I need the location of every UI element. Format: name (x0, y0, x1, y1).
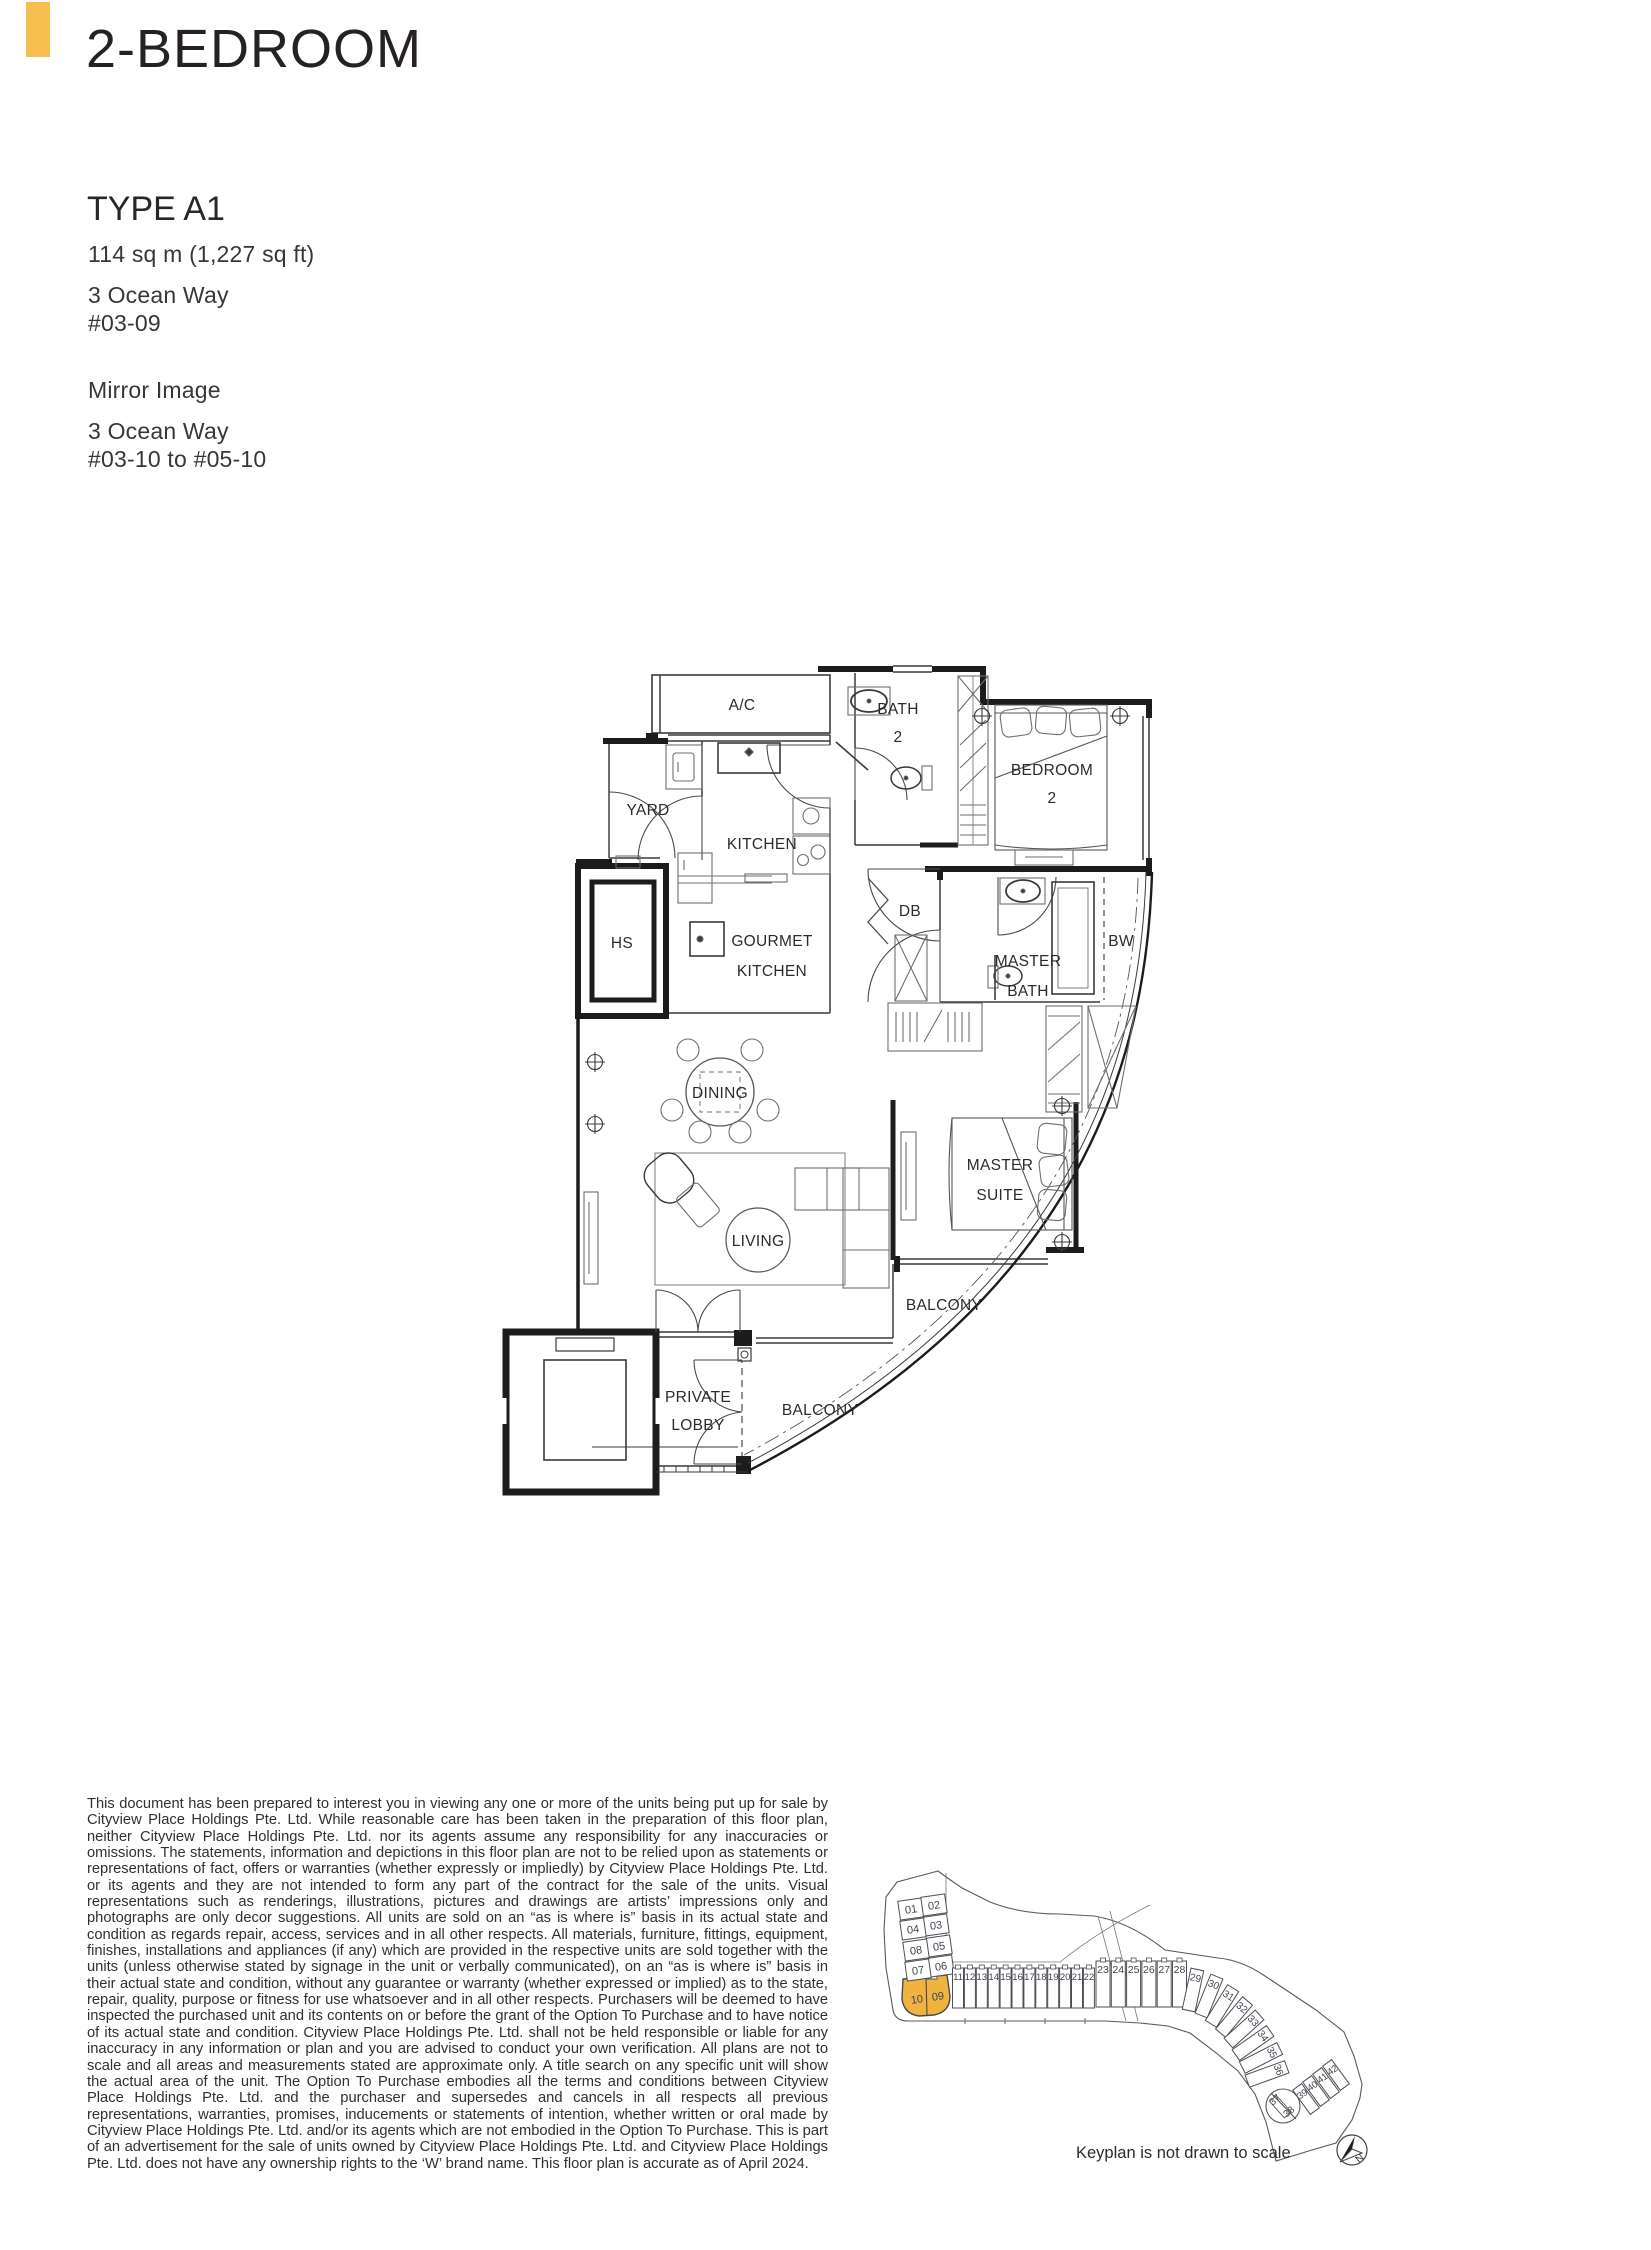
wall-notches (502, 1398, 660, 1424)
room-label-bedroom2-num: 2 (1048, 790, 1057, 807)
keyplan-unit: 19 (1048, 1965, 1059, 2008)
room-label-db: DB (899, 903, 921, 920)
svg-text:20: 20 (1060, 1972, 1071, 1983)
svg-text:04: 04 (906, 1923, 920, 1937)
room-label-lobby2: LOBBY (671, 1417, 724, 1434)
svg-text:21: 21 (1072, 1972, 1083, 1983)
unit-address: 3 Ocean Way#03-09 (88, 281, 229, 337)
unit-area: 114 sq m (1,227 sq ft) (88, 240, 314, 268)
svg-text:10: 10 (910, 1993, 924, 2007)
keyplan-unit: 16 (1012, 1965, 1023, 2008)
svg-text:01: 01 (904, 1903, 918, 1917)
room-label-yard: YARD (626, 802, 669, 819)
room-label-bw: BW (1108, 933, 1134, 950)
svg-text:24: 24 (1112, 1964, 1124, 1976)
svg-text:11: 11 (953, 1972, 963, 1983)
keyplan-unit: 02 (921, 1894, 947, 1916)
north-arrow-icon: N (1337, 2135, 1367, 2165)
keyplan-unit: 03 (923, 1914, 949, 1936)
doors (609, 745, 1056, 1464)
keyplan-unit: 23 (1096, 1958, 1110, 2007)
keyplan-unit: 13 (976, 1965, 987, 2008)
unit-number: #03-09 (88, 310, 161, 336)
svg-text:08: 08 (909, 1944, 923, 1958)
room-label-mastersuite1: MASTER (967, 1157, 1033, 1174)
svg-text:15: 15 (1000, 1972, 1011, 1983)
keyplan-caption: Keyplan is not drawn to scale (1076, 2144, 1291, 2163)
room-label-living: LIVING (732, 1233, 785, 1250)
svg-text:26: 26 (1143, 1964, 1155, 1976)
svg-text:09: 09 (931, 1990, 945, 2004)
disclaimer-text: This document has been prepared to inter… (87, 1796, 828, 2172)
keyplan-unit: 26 (1142, 1958, 1156, 2007)
keyplan-unit: 04 (900, 1918, 926, 1940)
svg-text:27: 27 (1158, 1964, 1170, 1976)
room-label-dining: DINING (692, 1085, 748, 1102)
keyplan-unit: 14 (988, 1965, 999, 2008)
room-label-bath2-num: 2 (894, 729, 903, 746)
floor-plan-drawing: A/C BATH 2 BEDROOM 2 YARD KITCHEN HS GOU… (500, 650, 1225, 1520)
room-label-hs: HS (611, 935, 633, 952)
room-label-bath2: BATH (877, 701, 918, 718)
keyplan-unit: 24 (1111, 1958, 1125, 2007)
mirror-address-line: 3 Ocean Way (88, 418, 229, 444)
svg-text:23: 23 (1097, 1964, 1109, 1976)
keyplan-unit: 06 (928, 1955, 954, 1977)
keyplan-unit: 25 (1127, 1958, 1141, 2007)
north-label: N (1354, 2152, 1367, 2165)
balcony-railing (656, 1466, 748, 1472)
balcony-curve (744, 872, 1152, 1470)
keyplan-unit: 07 (905, 1959, 931, 1981)
svg-text:06: 06 (934, 1960, 948, 1974)
address-line: 3 Ocean Way (88, 282, 229, 308)
unit-type-title: TYPE A1 (87, 190, 225, 229)
keyplan-unit: 09 (931, 1990, 945, 2004)
keyplan-unit: 12 (964, 1965, 975, 2008)
lift-shaft (506, 1332, 656, 1492)
accent-square (26, 2, 50, 57)
page-title: 2-BEDROOM (86, 18, 422, 80)
svg-text:16: 16 (1012, 1972, 1023, 1983)
keyplan-unit: 08 (903, 1939, 929, 1961)
svg-text:12: 12 (965, 1972, 976, 1983)
keyplan-unit: 21 (1072, 1965, 1083, 2008)
room-label-bedroom2: BEDROOM (1011, 762, 1093, 779)
svg-text:03: 03 (929, 1919, 943, 1933)
room-label-gourmet2: KITCHEN (737, 963, 807, 980)
svg-text:17: 17 (1024, 1972, 1035, 1983)
svg-text:07: 07 (911, 1964, 925, 1978)
room-label-ac: A/C (729, 697, 756, 714)
svg-text:14: 14 (988, 1972, 999, 1983)
room-label-kitchen: KITCHEN (727, 836, 797, 853)
mirror-address: 3 Ocean Way#03-10 to #05-10 (88, 417, 266, 473)
svg-text:19: 19 (1048, 1972, 1059, 1983)
room-label-masterbath1: MASTER (995, 953, 1061, 970)
keyplan-units: 0102030405060708091011121314151617181920… (898, 1894, 1349, 2120)
room-label-lobby1: PRIVATE (665, 1389, 731, 1406)
room-label-balcony-bottom: BALCONY (782, 1402, 858, 1419)
svg-text:18: 18 (1036, 1972, 1047, 1983)
keyplan-unit: 15 (1000, 1965, 1011, 2008)
room-label-mastersuite2: SUITE (976, 1187, 1023, 1204)
svg-text:22: 22 (1084, 1972, 1095, 1983)
svg-text:25: 25 (1128, 1964, 1140, 1976)
mirror-unit-range: #03-10 to #05-10 (88, 446, 266, 472)
keyplan-unit: 17 (1024, 1965, 1035, 2008)
thin-walls (592, 666, 1149, 1466)
keyplan-unit: 01 (898, 1898, 924, 1920)
mirror-image-label: Mirror Image (88, 376, 221, 404)
keyplan-unit: 22 (1083, 1965, 1094, 2008)
keyplan-unit: 11 (953, 1965, 964, 2008)
svg-text:28: 28 (1174, 1964, 1186, 1976)
keyplan-unit: 05 (926, 1935, 952, 1957)
svg-text:13: 13 (977, 1972, 988, 1983)
room-label-gourmet1: GOURMET (731, 933, 813, 950)
room-label-balcony-right: BALCONY (906, 1297, 982, 1314)
floor-plan-page: 2-BEDROOM TYPE A1 114 sq m (1,227 sq ft)… (0, 0, 1651, 2250)
keyplan-unit: 18 (1036, 1965, 1047, 2008)
room-label-masterbath2: BATH (1007, 983, 1048, 1000)
keyplan-unit: 10 (910, 1993, 924, 2007)
svg-text:02: 02 (927, 1899, 941, 1913)
svg-text:05: 05 (932, 1940, 946, 1954)
keyplan-unit: 20 (1060, 1965, 1071, 2008)
keyplan-unit: 27 (1157, 1958, 1171, 2007)
